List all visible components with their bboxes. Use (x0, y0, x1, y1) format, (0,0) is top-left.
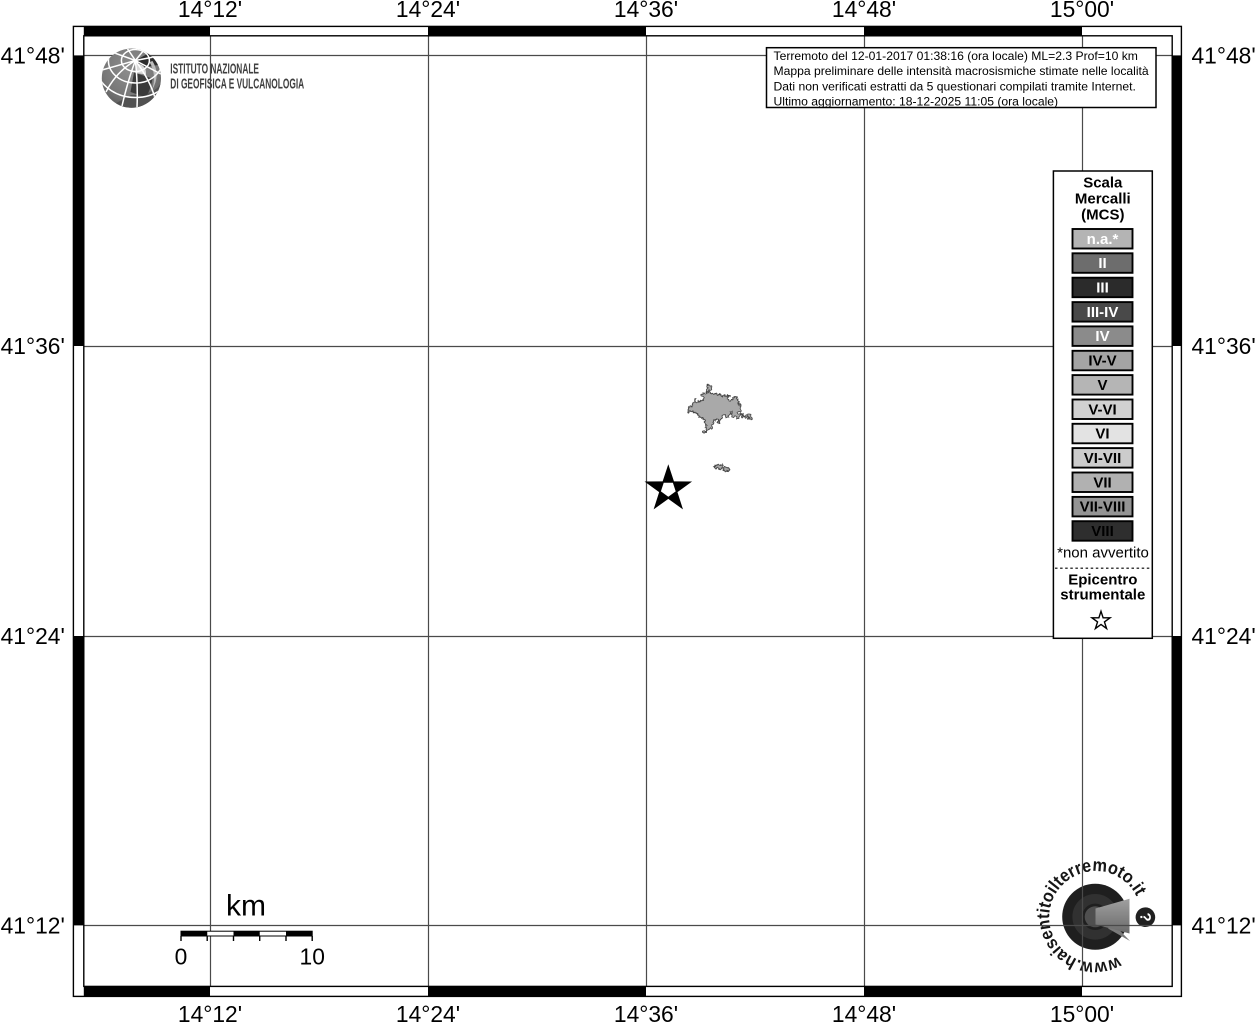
svg-text:15°00': 15°00' (1050, 1001, 1114, 1024)
svg-text:IV: IV (1095, 328, 1109, 345)
svg-text:n.a.*: n.a.* (1087, 231, 1119, 248)
svg-text:41°24': 41°24' (1, 623, 65, 649)
svg-text:41°36': 41°36' (1, 333, 65, 359)
svg-text:41°48': 41°48' (1192, 43, 1255, 69)
svg-text:III: III (1096, 280, 1109, 297)
svg-text:V-VI: V-VI (1088, 401, 1116, 418)
svg-text:14°48': 14°48' (832, 0, 896, 22)
svg-text:Mercalli: Mercalli (1075, 191, 1131, 208)
svg-text:14°12': 14°12' (178, 0, 242, 22)
svg-text:km: km (226, 890, 266, 923)
svg-text:10: 10 (300, 944, 325, 970)
svg-text:Mappa preliminare delle intens: Mappa preliminare delle intensità macros… (774, 64, 1149, 78)
svg-text:41°12': 41°12' (1192, 913, 1255, 939)
svg-text:II: II (1098, 255, 1106, 272)
svg-text:IV-V: IV-V (1088, 353, 1116, 370)
svg-text:III-IV: III-IV (1087, 304, 1119, 321)
svg-text:VI: VI (1095, 426, 1109, 443)
svg-text:14°36': 14°36' (614, 0, 678, 22)
svg-text:15°00': 15°00' (1050, 0, 1114, 22)
svg-text:14°48': 14°48' (832, 1001, 896, 1024)
svg-text:Scala: Scala (1083, 175, 1123, 192)
svg-text:Ultimo aggiornamento: 18-12-20: Ultimo aggiornamento: 18-12-2025 11:05 (… (774, 95, 1059, 109)
svg-text:14°36': 14°36' (614, 1001, 678, 1024)
svg-text:VI-VII: VI-VII (1084, 450, 1122, 467)
svg-text:V: V (1097, 377, 1107, 394)
svg-text:VII-VIII: VII-VIII (1080, 499, 1126, 516)
svg-text:14°12': 14°12' (178, 1001, 242, 1024)
svg-text:41°24': 41°24' (1192, 623, 1255, 649)
svg-text:0: 0 (175, 944, 188, 970)
svg-text:?: ? (1136, 912, 1153, 922)
svg-text:41°12': 41°12' (1, 913, 65, 939)
svg-text:14°24': 14°24' (396, 0, 460, 22)
svg-text:Terremoto del 12-01-2017 01:38: Terremoto del 12-01-2017 01:38:16 (ora l… (774, 49, 1138, 63)
svg-text:41°48': 41°48' (1, 43, 65, 69)
svg-text:Dati non verificati estratti d: Dati non verificati estratti da 5 questi… (774, 79, 1136, 93)
svg-text:VIII: VIII (1091, 523, 1114, 540)
svg-text:VII: VII (1093, 474, 1111, 491)
svg-text:41°36': 41°36' (1192, 333, 1255, 359)
svg-text:strumentale: strumentale (1060, 586, 1145, 603)
svg-text:DI GEOFISICA E VULCANOLOGIA: DI GEOFISICA E VULCANOLOGIA (170, 75, 304, 92)
svg-text:14°24': 14°24' (396, 1001, 460, 1024)
svg-text:*non avvertito: *non avvertito (1057, 544, 1149, 561)
svg-text:(MCS): (MCS) (1081, 207, 1124, 224)
